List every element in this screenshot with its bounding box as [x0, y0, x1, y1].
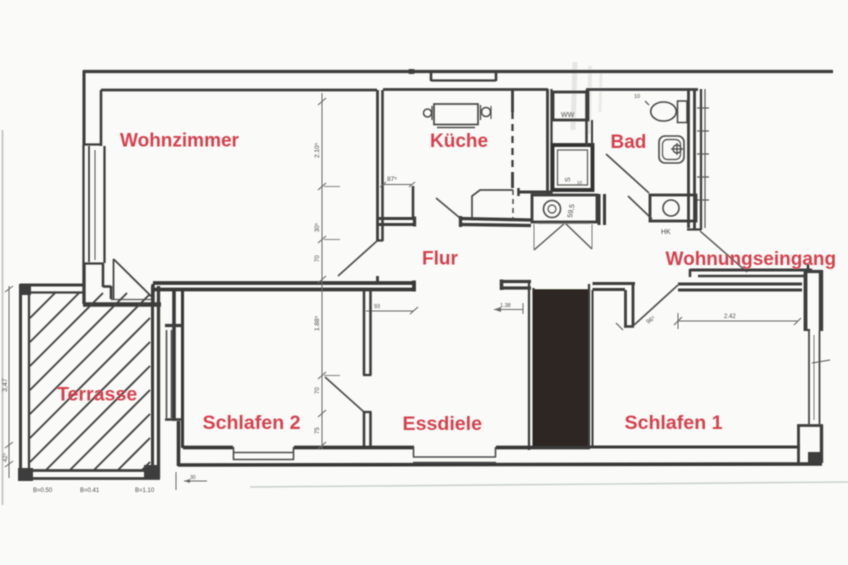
svg-text:Wohnungseingang: Wohnungseingang — [666, 249, 837, 270]
svg-text:Wohnzimmer: Wohnzimmer — [120, 131, 240, 152]
svg-text:B=0.41: B=0.41 — [80, 488, 100, 494]
svg-text:WW: WW — [561, 112, 575, 119]
svg-text:Küche: Küche — [430, 131, 488, 152]
svg-text:HK: HK — [661, 229, 671, 236]
svg-text:Terrasse: Terrasse — [57, 384, 137, 406]
svg-text:1.88⁵: 1.88⁵ — [314, 315, 321, 331]
svg-text:B=1.10: B=1.10 — [135, 488, 155, 494]
svg-text:87⁵: 87⁵ — [387, 176, 397, 183]
svg-text:70: 70 — [315, 255, 321, 262]
svg-text:S: S — [565, 177, 572, 182]
svg-text:Schlafen 2: Schlafen 2 — [203, 412, 301, 434]
svg-text:2.10⁵: 2.10⁵ — [314, 142, 321, 158]
svg-text:1.38: 1.38 — [500, 303, 511, 309]
svg-text:Flur: Flur — [422, 249, 458, 270]
svg-text:10: 10 — [577, 180, 583, 185]
svg-text:Bad: Bad — [611, 132, 647, 153]
svg-text:10: 10 — [634, 94, 640, 100]
svg-text:30⁵: 30⁵ — [314, 222, 321, 232]
svg-text:2.42: 2.42 — [724, 314, 736, 320]
svg-text:30: 30 — [190, 475, 196, 481]
svg-text:Essdiele: Essdiele — [403, 413, 483, 435]
svg-text:93: 93 — [374, 304, 380, 310]
svg-text:75: 75 — [315, 427, 321, 434]
svg-text:Schlafen 1: Schlafen 1 — [625, 412, 723, 434]
svg-text:42⁵: 42⁵ — [2, 452, 9, 462]
svg-text:B=0.50: B=0.50 — [33, 488, 53, 494]
svg-text:3,47: 3,47 — [2, 378, 9, 392]
svg-text:70: 70 — [315, 387, 321, 394]
